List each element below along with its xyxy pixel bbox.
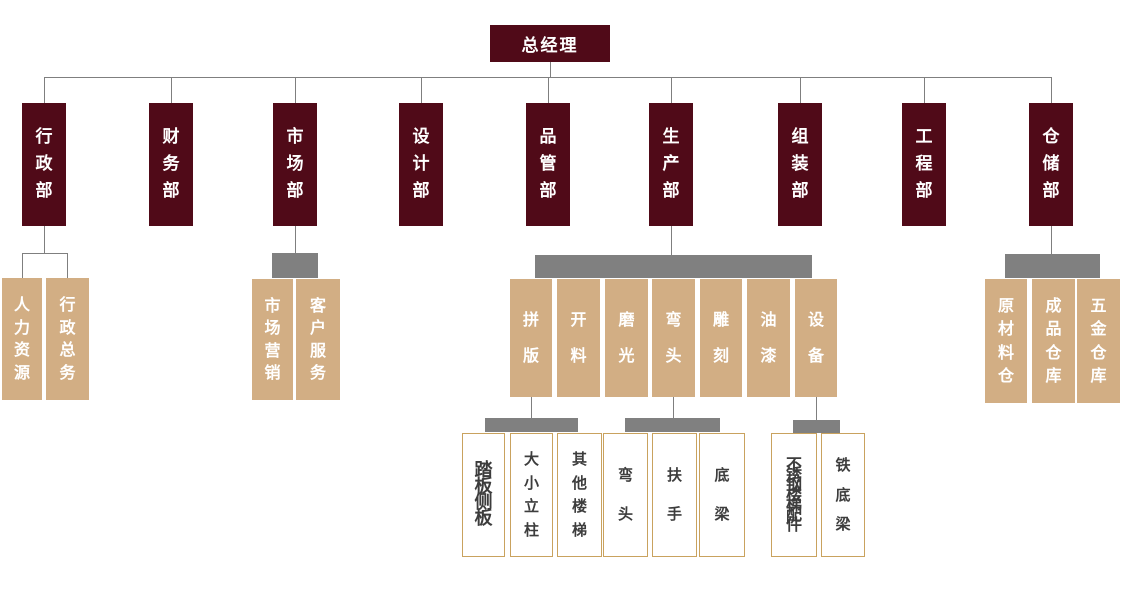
connector-line (44, 226, 45, 253)
connector-line (800, 77, 801, 103)
node-raw-material-warehouse: 原材料仓 (985, 279, 1027, 403)
node-hr: 人力资源 (2, 278, 42, 400)
node-hardware-warehouse: 五金仓库 (1077, 279, 1120, 403)
node-carving: 雕刻 (700, 279, 742, 397)
connector-line (22, 253, 23, 279)
connector-line (421, 77, 422, 103)
node-design-dept: 设计部 (399, 103, 443, 226)
node-panel-assembly: 拼版 (510, 279, 552, 397)
connector-line (550, 62, 551, 77)
connector-line (673, 397, 674, 418)
node-customer-service: 客户服务 (296, 279, 340, 400)
junction-bar-equipment (793, 420, 840, 433)
node-production-dept: 生产部 (649, 103, 693, 226)
connector-line (671, 226, 672, 255)
junction-bar-marketing (272, 253, 318, 278)
node-stainless-stair-accessories: 不锈钢楼梯配件 (771, 433, 817, 557)
org-chart: 总经理 行政部 财务部 市场部 设计部 品管部 生产部 组装部 工程部 仓储部 … (0, 0, 1122, 592)
connector-line (1051, 226, 1052, 254)
node-posts: 大小立柱 (510, 433, 553, 557)
node-general-manager: 总经理 (490, 25, 610, 62)
connector-line (22, 253, 68, 254)
connector-line (924, 77, 925, 103)
node-engineering-dept: 工程部 (902, 103, 946, 226)
node-bottom-beam: 底梁 (699, 433, 745, 557)
connector-line (1051, 77, 1052, 103)
node-finance-dept: 财务部 (149, 103, 193, 226)
junction-bar-bending (625, 418, 720, 432)
node-polishing: 磨光 (605, 279, 648, 397)
connector-line (44, 77, 45, 103)
node-elbow: 弯头 (603, 433, 648, 557)
connector-line (816, 397, 817, 420)
connector-line (171, 77, 172, 103)
node-handrail: 扶手 (652, 433, 697, 557)
node-cutting: 开料 (557, 279, 600, 397)
node-assembly-dept: 组装部 (778, 103, 822, 226)
node-finished-goods-warehouse: 成品仓库 (1032, 279, 1075, 403)
node-bending: 弯头 (652, 279, 695, 397)
connector-line (295, 77, 296, 103)
junction-bar-production (535, 255, 812, 278)
node-warehouse-dept: 仓储部 (1029, 103, 1073, 226)
node-equipment: 设备 (795, 279, 837, 397)
node-qc-dept: 品管部 (526, 103, 570, 226)
connector-line (531, 397, 532, 418)
junction-bar-panel (485, 418, 578, 432)
node-admin-dept: 行政部 (22, 103, 66, 226)
junction-bar-warehouse (1005, 254, 1100, 278)
connector-line (548, 77, 549, 103)
node-iron-bottom-beam: 铁底梁 (821, 433, 865, 557)
node-marketing-dept: 市场部 (273, 103, 317, 226)
node-painting: 油漆 (747, 279, 790, 397)
node-label: 总经理 (522, 31, 579, 56)
connector-line (67, 253, 68, 279)
connector-line (671, 77, 672, 103)
node-marketing: 市场营销 (252, 279, 293, 400)
node-treads-side-boards: 踏板侧板 (462, 433, 505, 557)
node-other-stairs: 其他楼梯 (557, 433, 602, 557)
node-general-affairs: 行政总务 (46, 278, 89, 400)
connector-line (295, 226, 296, 253)
